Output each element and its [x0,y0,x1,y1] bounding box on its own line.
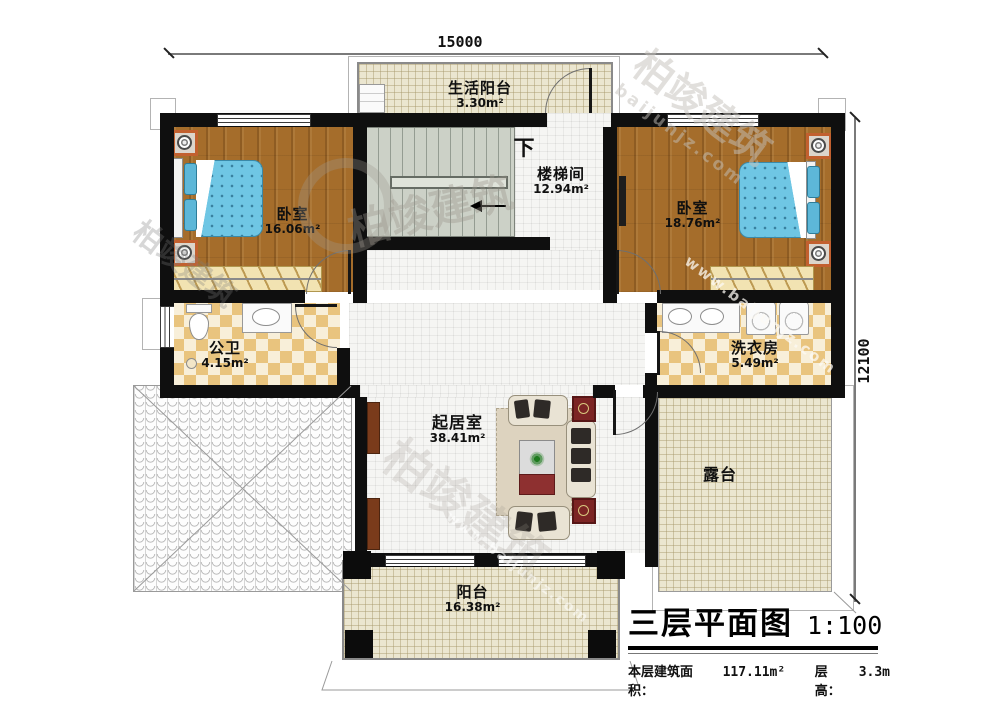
dimension-line-top [168,53,824,55]
room-name: 阳台 [415,584,530,601]
label-terrace: 露台 [680,466,760,484]
label-life-balcony: 生活阳台 3.30m² [420,80,540,111]
floor-area-label: 本层建筑面积： [628,661,717,699]
dimension-top-value: 15000 [408,33,512,51]
floor-area-value: 117.11m² [723,665,786,680]
room-name: 楼梯间 [505,166,617,183]
title-info-row: 本层建筑面积：117.11m² 层高：3.3m [628,661,890,699]
title-block: 三层平面图 1:100 本层建筑面积：117.11m² 层高：3.3m [628,598,890,698]
room-name: 公卫 [180,340,270,357]
room-area: 38.41m² [400,432,515,446]
floor-plan: 生活阳台 3.30m² 楼梯间 12.94m² 下 卧室 16.06m² 卧室 … [0,0,1000,706]
label-balcony: 阳台 16.38m² [415,584,530,615]
floor-height-label: 层高： [815,661,853,699]
room-name: 生活阳台 [420,80,540,97]
room-area: 5.49m² [705,357,805,371]
label-bathroom: 公卫 4.15m² [180,340,270,371]
room-name: 起居室 [400,414,515,432]
room-name: 洗衣房 [705,340,805,357]
room-area: 16.38m² [415,601,530,615]
room-area: 3.30m² [420,97,540,111]
dimension-right-value: 12100 [855,323,873,399]
label-living: 起居室 38.41m² [400,414,515,446]
watermark-logo-icon [298,158,394,254]
room-area: 4.15m² [180,357,270,371]
plan-scale: 1:100 [807,611,882,640]
label-bedroom-right: 卧室 18.76m² [640,200,745,231]
floor-height-value: 3.3m [859,665,890,680]
title-divider [628,646,878,654]
room-area: 18.76m² [640,217,745,231]
room-name: 露台 [680,466,760,484]
label-stair-down: 下 [506,136,542,160]
title-row: 三层平面图 1:100 [628,598,890,643]
label-stairwell: 楼梯间 12.94m² [505,166,617,197]
room-area: 12.94m² [505,183,617,197]
plan-title: 三层平面图 [628,598,793,643]
label-laundry: 洗衣房 5.49m² [705,340,805,371]
room-name: 卧室 [640,200,745,217]
